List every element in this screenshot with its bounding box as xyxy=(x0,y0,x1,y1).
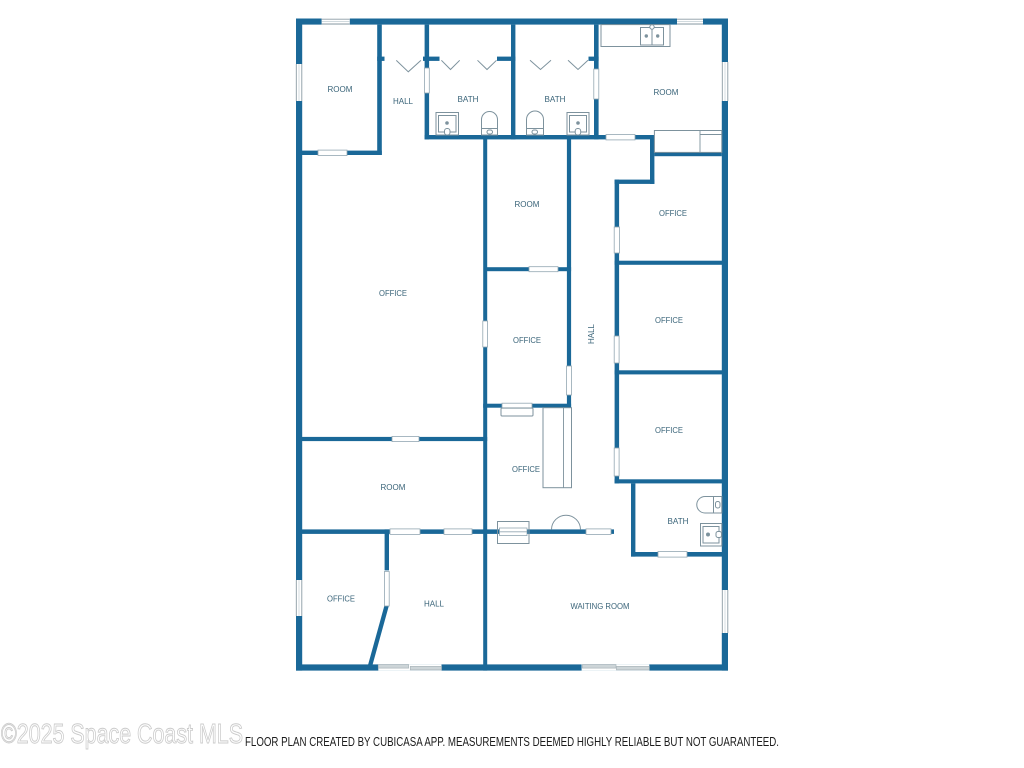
svg-text:HALL: HALL xyxy=(424,599,444,609)
svg-text:FLOOR PLAN CREATED BY CUBICASA: FLOOR PLAN CREATED BY CUBICASA APP. MEAS… xyxy=(245,734,779,749)
svg-text:BATH: BATH xyxy=(668,516,689,526)
svg-text:OFFICE: OFFICE xyxy=(655,425,683,435)
svg-text:ROOM: ROOM xyxy=(515,199,540,209)
svg-text:BATH: BATH xyxy=(545,94,566,104)
svg-text:OFFICE: OFFICE xyxy=(513,335,541,345)
svg-text:OFFICE: OFFICE xyxy=(327,594,355,604)
svg-text:OFFICE: OFFICE xyxy=(379,288,407,298)
svg-text:OFFICE: OFFICE xyxy=(512,464,540,474)
svg-text:WAITING ROOM: WAITING ROOM xyxy=(571,601,630,611)
svg-text:OFFICE: OFFICE xyxy=(655,315,683,325)
svg-text:ROOM: ROOM xyxy=(654,87,679,97)
svg-text:ROOM: ROOM xyxy=(381,482,406,492)
svg-text:©2025 Space Coast MLS: ©2025 Space Coast MLS xyxy=(1,718,243,749)
svg-text:OFFICE: OFFICE xyxy=(659,208,687,218)
svg-text:HALL: HALL xyxy=(586,324,596,344)
svg-text:ROOM: ROOM xyxy=(328,84,353,94)
svg-text:BATH: BATH xyxy=(458,94,479,104)
svg-text:HALL: HALL xyxy=(393,96,413,106)
